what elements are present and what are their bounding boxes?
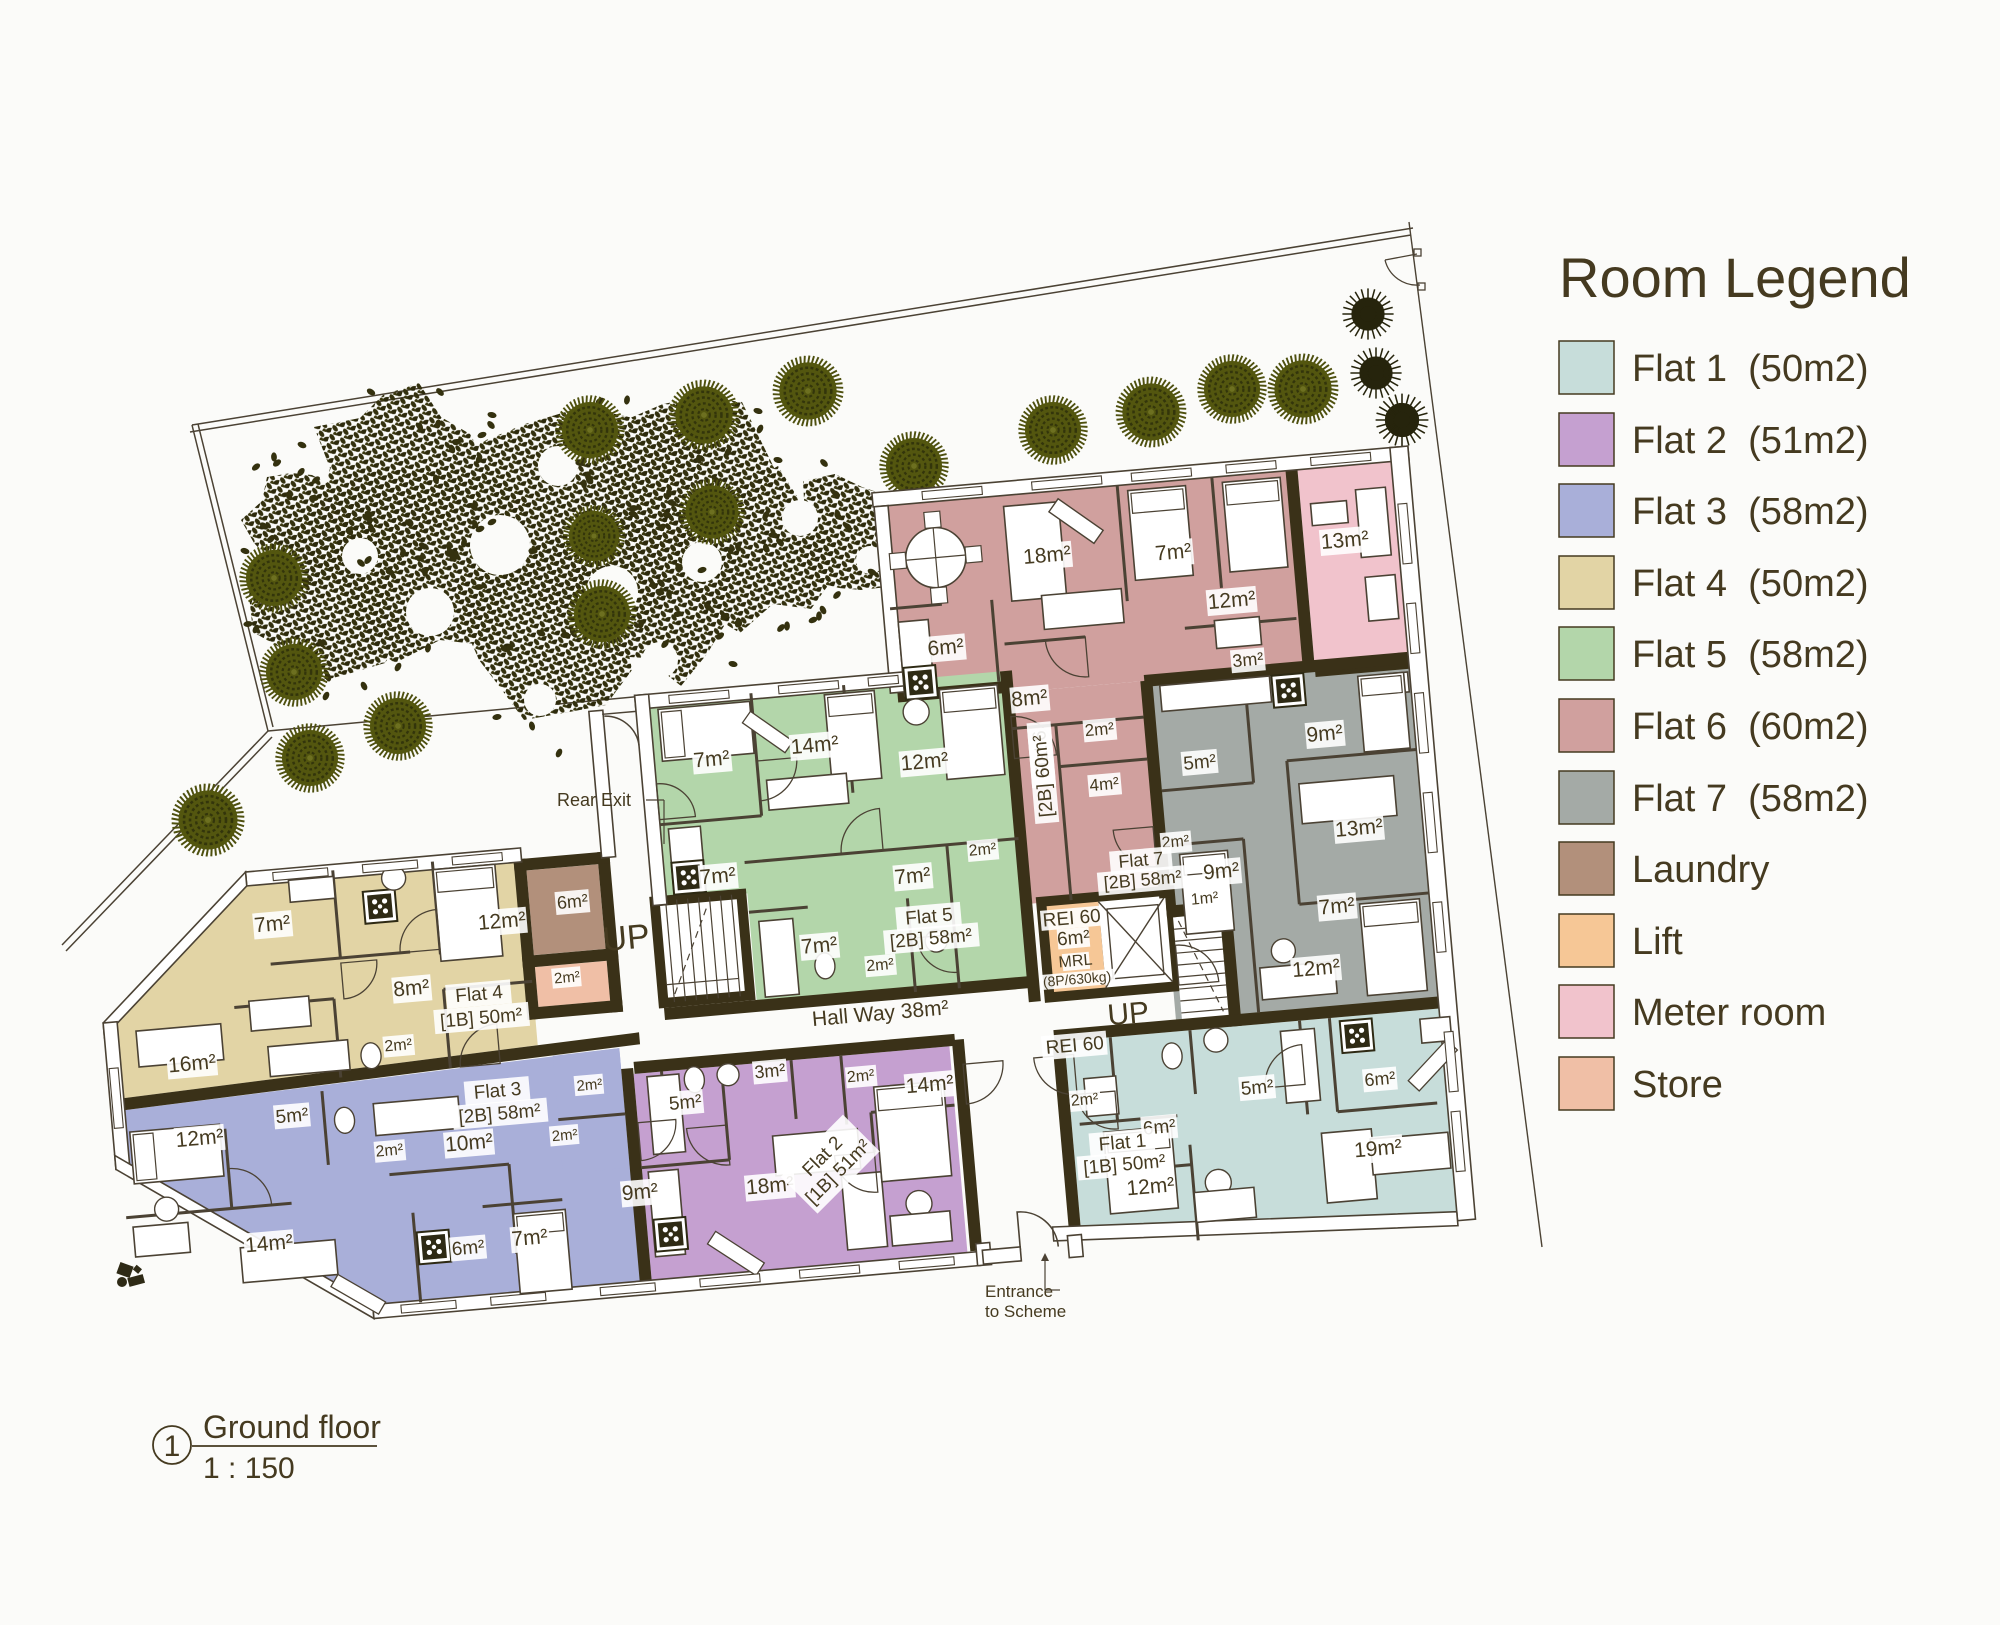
svg-text:9m²: 9m² bbox=[1202, 858, 1240, 884]
svg-text:Lift: Lift bbox=[1632, 921, 1683, 963]
svg-text:7m²: 7m² bbox=[893, 863, 931, 889]
svg-text:12m²: 12m² bbox=[175, 1125, 225, 1152]
svg-text:2m²: 2m² bbox=[384, 1036, 414, 1055]
svg-text:16m²: 16m² bbox=[167, 1050, 217, 1077]
svg-text:Flat 1 (50m2): Flat 1 (50m2) bbox=[1632, 348, 1869, 390]
svg-text:Room Legend: Room Legend bbox=[1559, 246, 1911, 309]
svg-text:5m²: 5m² bbox=[1240, 1076, 1274, 1100]
svg-text:7m²: 7m² bbox=[253, 911, 291, 937]
svg-text:UP: UP bbox=[601, 917, 651, 959]
svg-text:1: 1 bbox=[164, 1430, 181, 1463]
svg-text:8m²: 8m² bbox=[1010, 685, 1048, 711]
svg-text:13m²: 13m² bbox=[1334, 815, 1384, 842]
svg-text:2m²: 2m² bbox=[846, 1067, 876, 1086]
svg-text:6m²: 6m² bbox=[1364, 1068, 1397, 1091]
svg-text:MRL: MRL bbox=[1058, 952, 1093, 972]
svg-text:to Scheme: to Scheme bbox=[985, 1302, 1066, 1321]
svg-text:2m²: 2m² bbox=[968, 840, 998, 859]
svg-text:7m²: 7m² bbox=[692, 746, 730, 772]
svg-text:Laundry: Laundry bbox=[1632, 849, 1769, 891]
svg-text:5m²: 5m² bbox=[1182, 751, 1216, 775]
svg-text:2m²: 2m² bbox=[553, 968, 580, 987]
svg-text:2m²: 2m² bbox=[866, 956, 896, 975]
svg-text:13m²: 13m² bbox=[1320, 527, 1370, 554]
svg-text:Flat 7 (58m2): Flat 7 (58m2) bbox=[1632, 778, 1869, 820]
svg-text:Ground floor: Ground floor bbox=[203, 1409, 381, 1445]
svg-text:Store: Store bbox=[1632, 1064, 1723, 1106]
svg-text:6m²: 6m² bbox=[556, 890, 589, 913]
svg-text:12m²: 12m² bbox=[1207, 587, 1257, 614]
svg-text:12m²: 12m² bbox=[900, 748, 950, 775]
svg-text:5m²: 5m² bbox=[668, 1091, 702, 1115]
svg-text:2m²: 2m² bbox=[576, 1076, 603, 1095]
svg-text:4m²: 4m² bbox=[1089, 774, 1120, 796]
svg-text:1 : 150: 1 : 150 bbox=[203, 1452, 295, 1485]
svg-text:14m²: 14m² bbox=[790, 732, 840, 759]
svg-text:6m²: 6m² bbox=[451, 1237, 485, 1261]
svg-text:6m²: 6m² bbox=[927, 635, 965, 661]
svg-text:Rear Exit: Rear Exit bbox=[557, 790, 631, 810]
svg-text:12m²: 12m² bbox=[1126, 1173, 1176, 1200]
svg-text:UP: UP bbox=[1106, 996, 1150, 1033]
svg-text:Flat 4 (50m2): Flat 4 (50m2) bbox=[1632, 563, 1869, 605]
svg-text:14m²: 14m² bbox=[244, 1230, 294, 1257]
svg-text:14m²: 14m² bbox=[905, 1071, 955, 1098]
svg-text:Flat 3 (58m2): Flat 3 (58m2) bbox=[1632, 491, 1869, 533]
svg-text:7m²: 7m² bbox=[1154, 539, 1192, 565]
svg-text:7m²: 7m² bbox=[800, 933, 838, 959]
svg-text:12m²: 12m² bbox=[477, 908, 527, 935]
svg-text:2m²: 2m² bbox=[551, 1126, 578, 1145]
svg-text:1m²: 1m² bbox=[1190, 889, 1220, 908]
svg-text:2m²: 2m² bbox=[1084, 719, 1115, 741]
svg-text:8m²: 8m² bbox=[392, 975, 430, 1001]
svg-text:2m²: 2m² bbox=[1070, 1091, 1100, 1110]
svg-text:7m²: 7m² bbox=[699, 863, 737, 889]
svg-text:10m²: 10m² bbox=[444, 1130, 494, 1157]
svg-text:7m²: 7m² bbox=[1318, 893, 1356, 919]
svg-text:Entrance: Entrance bbox=[985, 1282, 1053, 1301]
svg-text:Flat 2 (51m2): Flat 2 (51m2) bbox=[1632, 420, 1869, 462]
svg-text:7m²: 7m² bbox=[511, 1225, 549, 1251]
svg-text:5m²: 5m² bbox=[275, 1104, 309, 1128]
svg-text:Meter room: Meter room bbox=[1632, 992, 1826, 1034]
svg-text:3m²: 3m² bbox=[754, 1060, 787, 1083]
svg-text:Flat 3: Flat 3 bbox=[473, 1079, 522, 1104]
svg-text:3m²: 3m² bbox=[1232, 649, 1265, 672]
svg-text:9m²: 9m² bbox=[1306, 721, 1344, 747]
svg-text:12m²: 12m² bbox=[1291, 955, 1341, 982]
svg-text:Flat 4: Flat 4 bbox=[455, 982, 505, 1007]
svg-text:2m²: 2m² bbox=[375, 1141, 405, 1160]
svg-text:Flat 5 (58m2): Flat 5 (58m2) bbox=[1632, 634, 1869, 676]
svg-text:Flat 6 (60m2): Flat 6 (60m2) bbox=[1632, 706, 1869, 748]
svg-text:19m²: 19m² bbox=[1353, 1135, 1403, 1162]
svg-text:18m²: 18m² bbox=[1022, 542, 1072, 569]
svg-text:6m²: 6m² bbox=[1056, 927, 1090, 951]
svg-text:9m²: 9m² bbox=[621, 1179, 659, 1205]
